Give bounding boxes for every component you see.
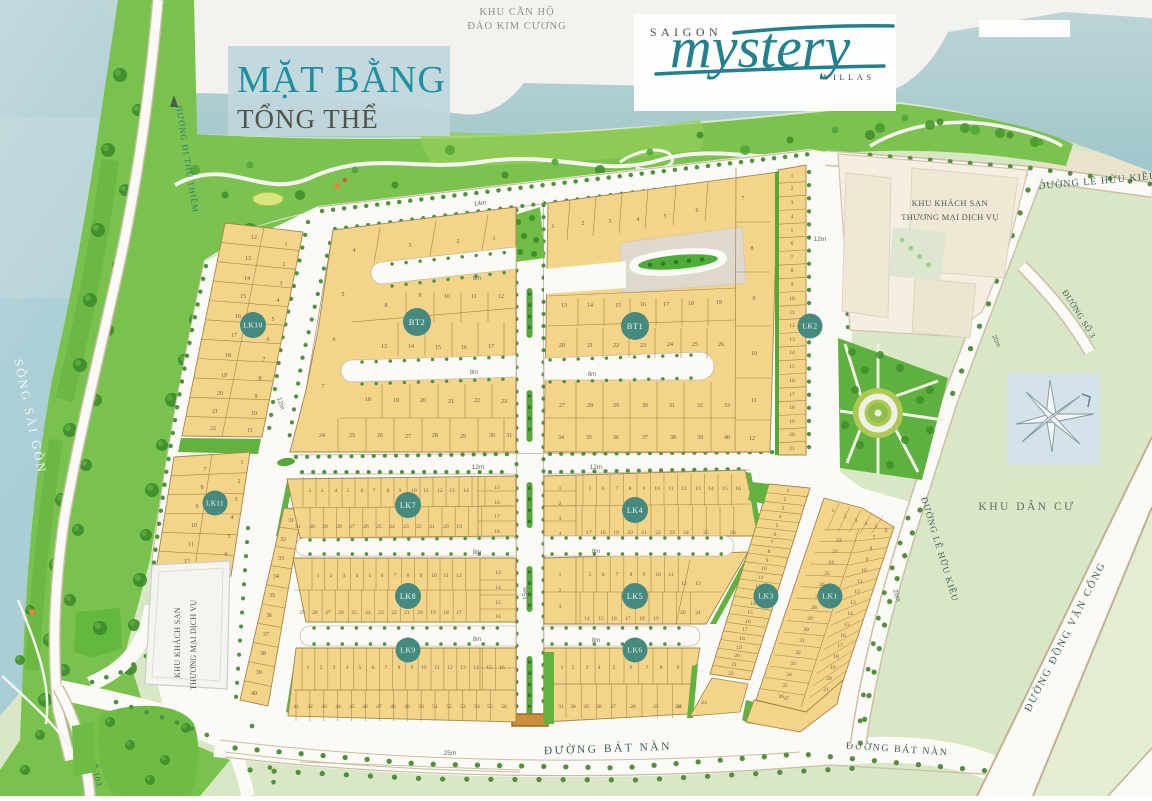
svg-text:THƯƠNG MẠI DỊCH VỤ: THƯƠNG MẠI DỊCH VỤ [901,212,999,222]
svg-text:12m: 12m [472,464,485,471]
svg-text:LK2: LK2 [802,322,817,331]
svg-text:8m: 8m [473,637,481,643]
svg-text:12m: 12m [814,236,827,243]
svg-text:8m: 8m [473,276,481,282]
svg-text:8m: 8m [592,638,600,644]
svg-text:LK1: LK1 [822,592,837,601]
svg-text:LK6: LK6 [627,646,642,655]
svg-text:LK10: LK10 [243,321,263,330]
svg-text:8m: 8m [473,550,481,556]
svg-text:BT1: BT1 [627,321,644,331]
svg-text:25m: 25m [444,750,457,757]
svg-text:KHU CĂN HỘ: KHU CĂN HỘ [479,6,554,18]
svg-text:VILLAS: VILLAS [823,72,874,82]
svg-text:MẶT BẰNG: MẶT BẰNG [237,58,446,101]
svg-text:ĐẢO KIM CƯƠNG: ĐẢO KIM CƯƠNG [467,20,566,32]
svg-text:12m: 12m [590,464,603,471]
svg-text:37: 37 [783,696,789,702]
svg-text:KHU KHÁCH SẠN: KHU KHÁCH SẠN [912,198,988,208]
svg-text:LK3: LK3 [758,592,773,601]
svg-text:LK4: LK4 [627,506,643,515]
svg-text:KHU DÂN CƯ: KHU DÂN CƯ [978,499,1075,513]
svg-text:15m: 15m [522,587,529,600]
svg-text:BT2: BT2 [409,317,426,327]
svg-text:TỔNG THỂ: TỔNG THỂ [237,103,379,134]
svg-text:8m: 8m [588,372,596,378]
svg-text:LK11: LK11 [206,499,224,507]
svg-text:LK7: LK7 [400,501,416,510]
svg-text:LK8: LK8 [400,592,416,601]
svg-text:KHU KHÁCH SẠN: KHU KHÁCH SẠN [172,607,182,678]
svg-text:8m: 8m [592,549,600,555]
svg-text:THƯƠNG MẠI DỊCH VỤ: THƯƠNG MẠI DỊCH VỤ [189,600,198,690]
svg-text:8m: 8m [470,370,478,376]
svg-text:LK9: LK9 [400,646,415,655]
svg-text:LK5: LK5 [627,592,643,601]
